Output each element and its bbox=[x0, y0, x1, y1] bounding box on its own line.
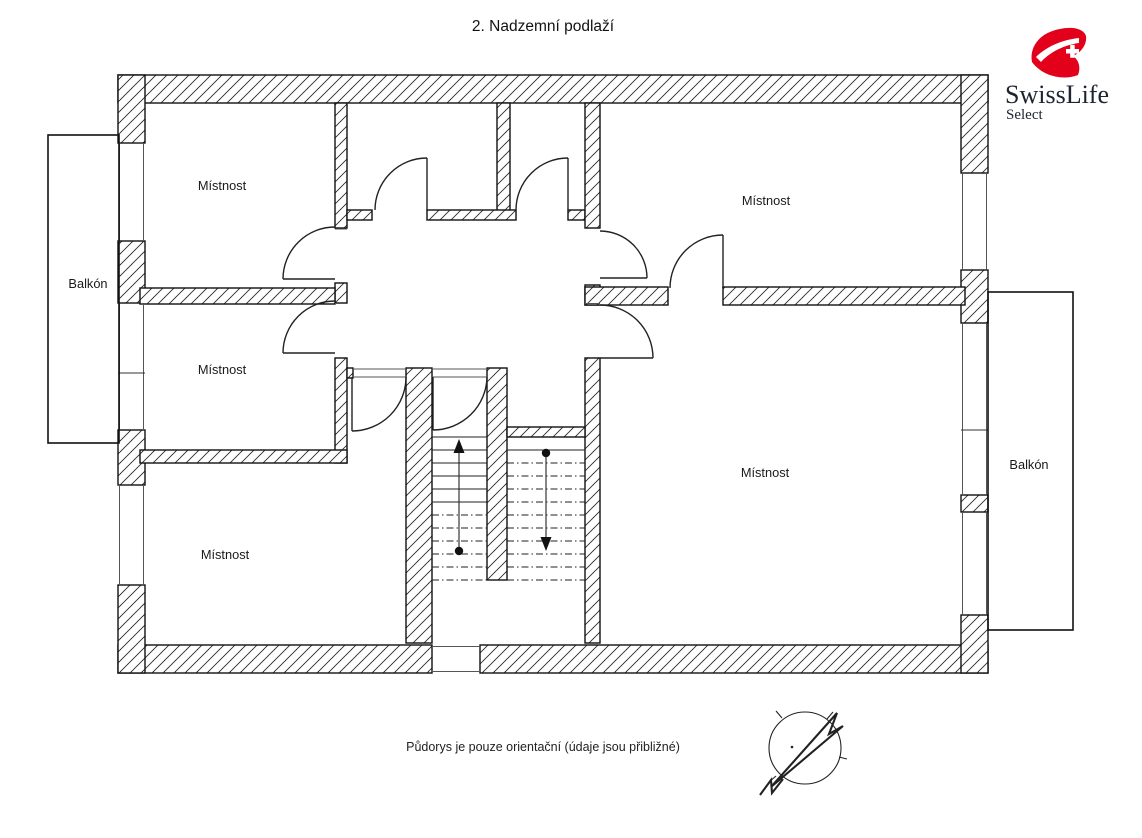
door-hall-vestibule bbox=[352, 377, 406, 431]
wall-stairwell-left bbox=[406, 368, 432, 643]
swisslife-logo: SwissLife Select bbox=[1005, 28, 1109, 123]
floor-plan: Balkón Balkón Místnost Místnost Místnost… bbox=[48, 75, 1073, 673]
wall-small-rooms-bottom-seg1 bbox=[347, 210, 372, 220]
wall-bottom-right bbox=[480, 645, 988, 673]
room-bottom-left-region bbox=[145, 463, 406, 643]
wall-small-rooms-bottom-seg3 bbox=[568, 210, 585, 220]
stair-start-dot bbox=[455, 547, 463, 555]
stairs-up-flight bbox=[432, 437, 487, 580]
wall-right-seg1 bbox=[961, 75, 988, 173]
balcony-label: Balkón bbox=[1009, 457, 1048, 472]
balcony-right: Balkón bbox=[988, 292, 1073, 630]
room-mid-left-region bbox=[145, 304, 335, 450]
wall-hall-left-seg3 bbox=[335, 358, 347, 463]
down-arrow-icon bbox=[541, 537, 552, 551]
page-title: 2. Nadzemní podlaží bbox=[472, 18, 615, 35]
room-top-left-region bbox=[145, 103, 335, 288]
wall-hall-left-seg1 bbox=[335, 103, 347, 228]
wall-hall-bottom-stub bbox=[347, 368, 353, 378]
wall-bottom-left bbox=[118, 645, 432, 673]
wall-hall-left-seg2 bbox=[335, 283, 347, 303]
door-small-room-a bbox=[375, 158, 427, 210]
north-arrow-icon bbox=[760, 711, 847, 795]
wall-small-rooms-bottom-seg2 bbox=[427, 210, 516, 220]
wall-down-flight-top bbox=[507, 427, 585, 437]
staircase bbox=[432, 437, 585, 580]
room-label: Místnost bbox=[201, 547, 250, 562]
room-label: Místnost bbox=[741, 465, 790, 480]
wall-right-seg3 bbox=[961, 495, 988, 512]
wall-left-rooms-divider bbox=[140, 288, 335, 304]
wall-stair-flights-divider bbox=[487, 368, 507, 580]
balcony-label: Balkón bbox=[68, 276, 107, 291]
door-hall-stairs bbox=[433, 377, 487, 430]
wall-right-seg4 bbox=[961, 615, 988, 673]
up-arrow-icon bbox=[454, 439, 465, 453]
rooms: Místnost Místnost Místnost Místnost Míst… bbox=[145, 103, 961, 643]
room-label: Místnost bbox=[198, 362, 247, 377]
room-label: Místnost bbox=[198, 178, 247, 193]
balcony-left: Balkón bbox=[48, 135, 119, 443]
wall-top bbox=[118, 75, 988, 103]
wall-hall-right-seg3 bbox=[585, 358, 600, 643]
room-label: Místnost bbox=[742, 193, 791, 208]
disclaimer: Půdorys je pouze orientační (údaje jsou … bbox=[406, 740, 680, 754]
stairs-down-flight bbox=[507, 449, 585, 580]
wall-right-rooms-divider-seg1 bbox=[585, 287, 668, 305]
wall-left-seg1 bbox=[118, 75, 145, 143]
wall-small-rooms-divider bbox=[497, 103, 510, 218]
logo-brand-text: SwissLife bbox=[1005, 80, 1109, 109]
wall-left-seg4 bbox=[118, 585, 145, 673]
wall-right-rooms-divider-seg2 bbox=[723, 287, 965, 305]
floor-plan-canvas: 2. Nadzemní podlaží bbox=[0, 0, 1142, 838]
stair-start-dot bbox=[542, 449, 550, 457]
door-small-room-b bbox=[516, 158, 568, 210]
swisslife-flag-icon bbox=[1032, 28, 1087, 78]
wall-bottomleft-room-top bbox=[140, 450, 347, 463]
logo-subbrand-text: Select bbox=[1006, 107, 1043, 123]
wall-hall-right-seg1 bbox=[585, 103, 600, 228]
